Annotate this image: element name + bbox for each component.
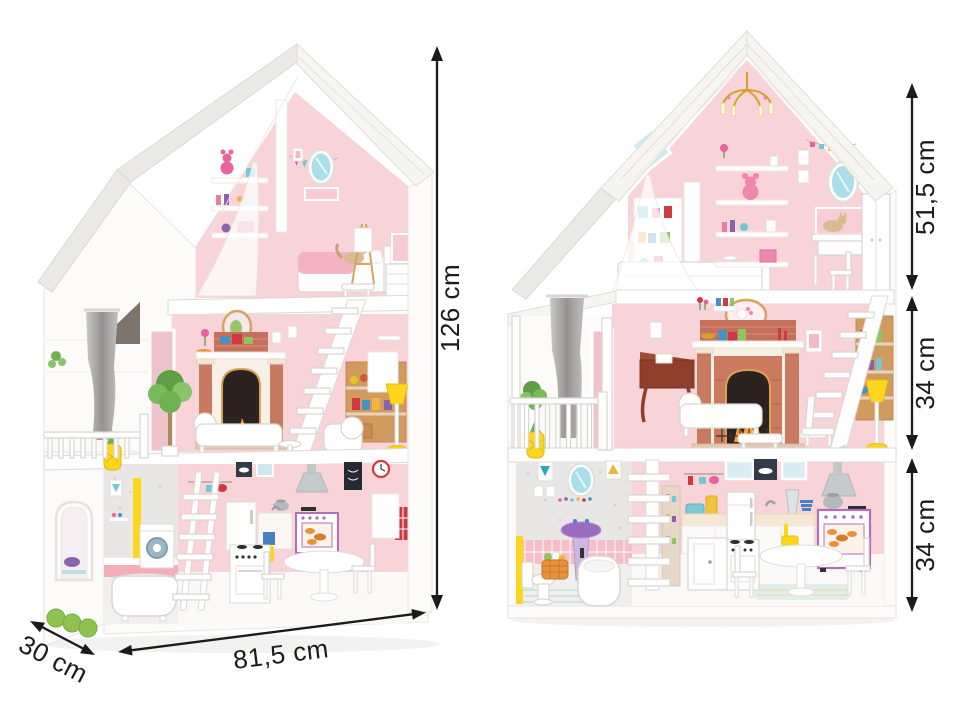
- fireplace: [692, 320, 804, 450]
- height-dimension-label: 126 cm: [435, 264, 465, 352]
- bathtub: [111, 574, 179, 621]
- ground-floor: [516, 459, 884, 606]
- window-cutout: [372, 494, 399, 538]
- bathroom-mirror: [568, 464, 594, 496]
- bathroom: [516, 461, 632, 606]
- wall-clock: [373, 461, 389, 477]
- washing-machine: [140, 524, 174, 568]
- ground-floor: [104, 461, 418, 624]
- dollhouse-diagram: 126 cm 81,5 cm 30 cm 51,5 cm 34 cm: [0, 0, 960, 720]
- attic-bedroom: [612, 60, 890, 300]
- counter-art: [258, 507, 292, 549]
- bathroom: [104, 464, 179, 624]
- fridge: [727, 492, 755, 540]
- dollhouse-angled-view: [38, 44, 440, 653]
- fridge-art: [226, 502, 256, 550]
- right-wall: [408, 172, 432, 612]
- middle-floor-slab: [508, 448, 896, 462]
- wardrobe: [862, 194, 890, 292]
- kitchen-cabinet: [688, 538, 728, 590]
- product-dimension-image: 126 cm 81,5 cm 30 cm 51,5 cm 34 cm: [0, 0, 960, 720]
- attic-dimension-label: 51,5 cm: [910, 139, 940, 235]
- poster: [344, 462, 362, 490]
- attic-bedroom: [196, 92, 418, 299]
- ground-floor-dimension-label: 34 cm: [910, 498, 940, 571]
- teddy-bear: [221, 150, 234, 175]
- dollhouse-front-view: [508, 31, 896, 627]
- stove-3d: [727, 540, 759, 590]
- living-room: [150, 300, 408, 455]
- arch-window: [56, 502, 92, 580]
- middle-floor-dimension-label: 34 cm: [910, 336, 940, 409]
- kitchen: [628, 459, 884, 606]
- kitchen: [173, 461, 418, 624]
- laundry-basket: [542, 552, 568, 579]
- base: [508, 606, 896, 618]
- purple-stove-art: [296, 513, 338, 553]
